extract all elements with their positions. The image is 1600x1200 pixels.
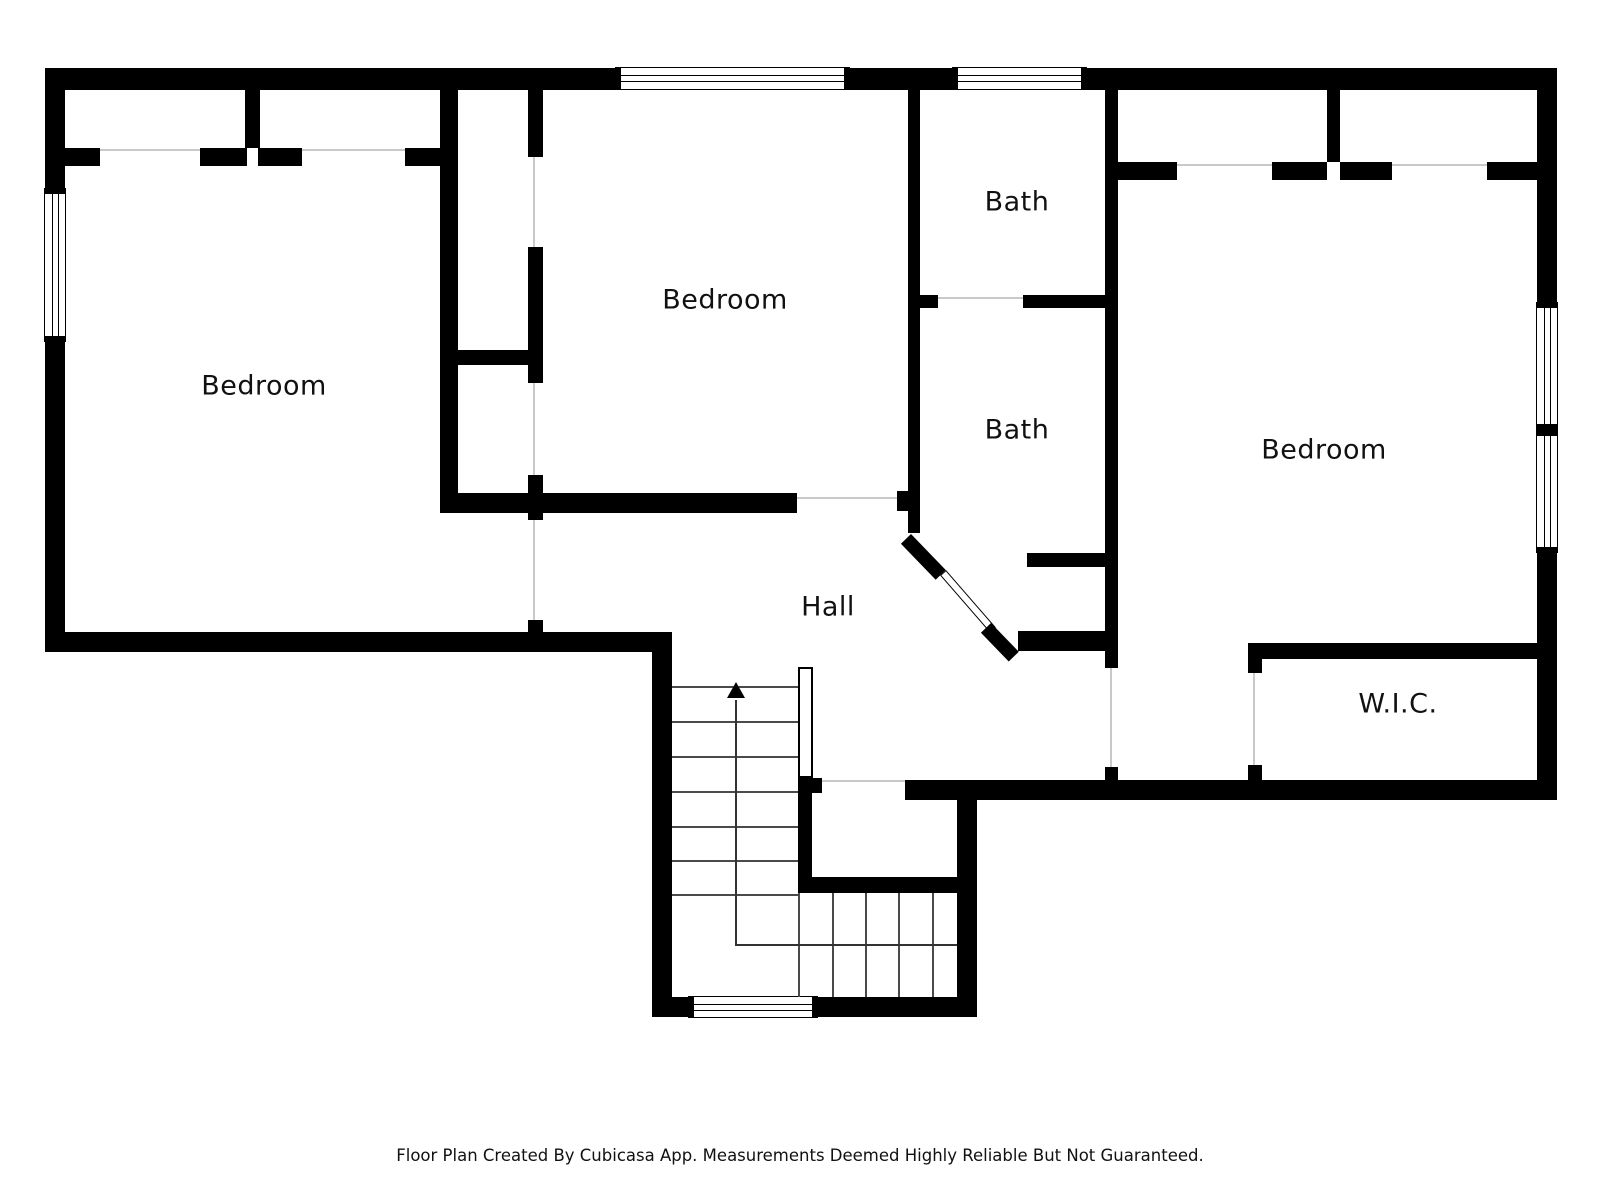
door-opening-line bbox=[533, 383, 535, 475]
door-opening-line bbox=[302, 149, 405, 151]
wall-segment bbox=[1340, 162, 1392, 180]
wall-segment bbox=[45, 342, 65, 652]
wall-segment bbox=[905, 780, 1555, 800]
stair-railing bbox=[798, 667, 813, 778]
window bbox=[615, 67, 850, 90]
room-label-bedroom-left: Bedroom bbox=[201, 371, 327, 402]
room-label-bath-upper: Bath bbox=[985, 187, 1050, 218]
window-pane bbox=[52, 192, 59, 338]
wall-segment bbox=[440, 493, 797, 513]
wall-segment bbox=[652, 997, 688, 1017]
wall-segment bbox=[1087, 68, 1555, 90]
wall-segment bbox=[258, 148, 302, 166]
wall-segment bbox=[850, 68, 952, 90]
wall-segment bbox=[1027, 553, 1118, 567]
window-pane bbox=[619, 75, 846, 82]
stair-walkline bbox=[735, 700, 737, 946]
window bbox=[1536, 302, 1558, 430]
stairs-up-arrow-icon bbox=[727, 682, 745, 698]
wall-segment bbox=[798, 877, 957, 893]
door-opening-line bbox=[1177, 164, 1272, 166]
room-label-bedroom-middle: Bedroom bbox=[662, 285, 788, 316]
wall-segment bbox=[798, 778, 822, 793]
door-opening-line bbox=[822, 780, 905, 782]
footer-disclaimer: Floor Plan Created By Cubicasa App. Meas… bbox=[0, 1146, 1600, 1165]
wall-segment bbox=[908, 295, 938, 308]
wall-segment bbox=[65, 148, 100, 166]
room-label-bath-lower: Bath bbox=[985, 415, 1050, 446]
door-opening-line bbox=[1110, 668, 1112, 767]
wall-segment bbox=[528, 88, 543, 157]
window-pane bbox=[1544, 306, 1551, 426]
window bbox=[688, 996, 818, 1018]
room-label-wic: W.I.C. bbox=[1358, 689, 1437, 720]
wall-segment bbox=[245, 90, 260, 148]
wall-segment-angled bbox=[981, 623, 1019, 661]
wall-segment bbox=[1272, 162, 1327, 180]
wall-segment bbox=[1537, 68, 1557, 302]
window-pane bbox=[692, 1004, 814, 1011]
wall-segment bbox=[528, 620, 543, 632]
window bbox=[44, 188, 66, 342]
wall-segment bbox=[440, 350, 543, 365]
wall-segment bbox=[45, 68, 65, 188]
door-opening-line bbox=[533, 520, 535, 620]
wall-segment bbox=[1537, 553, 1557, 800]
door-opening-line bbox=[797, 497, 897, 499]
wall-segment bbox=[798, 778, 812, 893]
wall-segment bbox=[818, 997, 977, 1017]
wall-segment bbox=[1023, 295, 1118, 308]
door-opening-line bbox=[1253, 673, 1255, 765]
wall-segment bbox=[1248, 643, 1262, 673]
wall-segment bbox=[1118, 162, 1177, 180]
window bbox=[1536, 430, 1558, 553]
wall-segment bbox=[652, 652, 672, 1017]
wall-segment bbox=[1018, 631, 1118, 651]
window bbox=[952, 67, 1087, 90]
wall-segment bbox=[1248, 643, 1537, 659]
floor-plan: Bedroom Bedroom Bath Bath Bedroom Hall W… bbox=[0, 0, 1600, 1200]
room-label-bedroom-right: Bedroom bbox=[1261, 435, 1387, 466]
wall-segment-angled bbox=[901, 534, 946, 580]
door-opening-line bbox=[100, 149, 200, 151]
wall-segment bbox=[440, 88, 458, 508]
wall-segment bbox=[200, 148, 247, 166]
stair-walkline bbox=[735, 944, 957, 946]
wall-segment bbox=[908, 87, 920, 533]
wall-segment bbox=[45, 632, 672, 652]
door-opening-line bbox=[938, 297, 1023, 299]
wall-segment bbox=[1105, 87, 1118, 668]
wall-segment bbox=[957, 782, 977, 1017]
wall-segment bbox=[45, 68, 615, 90]
wall-segment bbox=[1487, 162, 1537, 180]
door-opening-line bbox=[533, 157, 535, 247]
window-pane bbox=[956, 75, 1083, 82]
window-pane bbox=[1544, 434, 1551, 549]
wall-segment bbox=[1327, 90, 1340, 162]
room-label-hall: Hall bbox=[801, 592, 855, 623]
wall-segment bbox=[405, 148, 440, 166]
wall-segment bbox=[1105, 767, 1118, 782]
wall-segment bbox=[1248, 765, 1262, 782]
door-opening-line bbox=[1392, 164, 1487, 166]
door-leaf bbox=[940, 570, 996, 633]
